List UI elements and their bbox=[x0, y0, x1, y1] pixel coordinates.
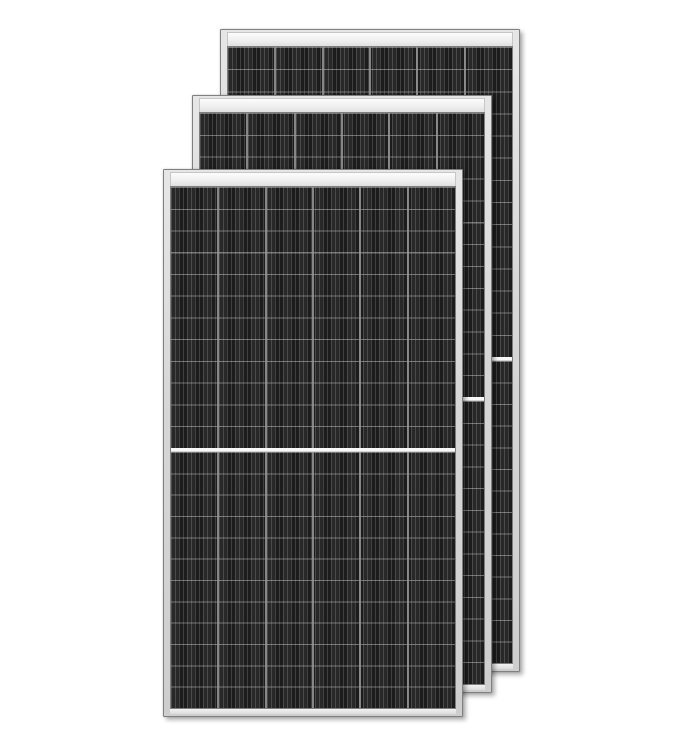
frame-top-rail bbox=[199, 98, 485, 113]
column-divider bbox=[312, 187, 314, 448]
cell-half-top bbox=[171, 187, 455, 448]
column-divider bbox=[407, 187, 409, 448]
column-divider bbox=[359, 452, 361, 708]
frame-top-rail bbox=[227, 32, 513, 47]
column-divider bbox=[407, 452, 409, 708]
column-divider bbox=[217, 452, 219, 708]
column-divider bbox=[312, 452, 314, 708]
column-divider bbox=[217, 187, 219, 448]
column-divider bbox=[265, 452, 267, 708]
solar-panel-front bbox=[163, 169, 463, 717]
column-divider bbox=[265, 187, 267, 448]
column-divider bbox=[359, 187, 361, 448]
cell-half-bottom bbox=[171, 452, 455, 708]
product-photo-canvas bbox=[0, 0, 684, 748]
frame-top-rail bbox=[170, 172, 456, 187]
frame-bottom-rail bbox=[170, 708, 456, 714]
cell-grid bbox=[171, 187, 455, 708]
